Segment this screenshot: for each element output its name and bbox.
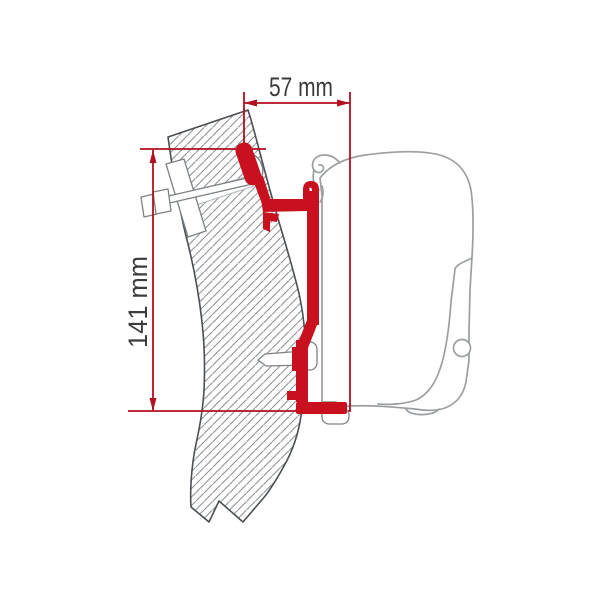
bracket-arm — [261, 199, 307, 212]
bracket-foot — [296, 402, 347, 414]
arrowhead-up-icon — [150, 150, 157, 163]
bracket-foot-tab — [287, 391, 296, 400]
case-body — [320, 152, 473, 411]
arrowhead-down-icon — [150, 398, 157, 411]
bracket-lower-strip — [296, 340, 308, 402]
vehicle-wall-section — [168, 110, 306, 522]
width-dimension-label: 57 mm — [269, 72, 333, 102]
bracket-rail — [307, 191, 319, 325]
diagram-page: 57 mm 141 mm — [0, 0, 600, 600]
bracket-screw-boss — [292, 347, 297, 371]
arrowhead-left-icon — [244, 100, 257, 107]
height-dimension-label: 141 mm — [123, 256, 153, 348]
awning-case-profile — [313, 152, 473, 415]
arrowhead-right-icon — [337, 100, 350, 107]
bolt-nut — [153, 189, 171, 214]
case-rail-pill — [454, 340, 471, 357]
technical-diagram-canvas: 57 mm 141 mm — [0, 0, 600, 600]
wall-hatch-area — [168, 110, 306, 522]
